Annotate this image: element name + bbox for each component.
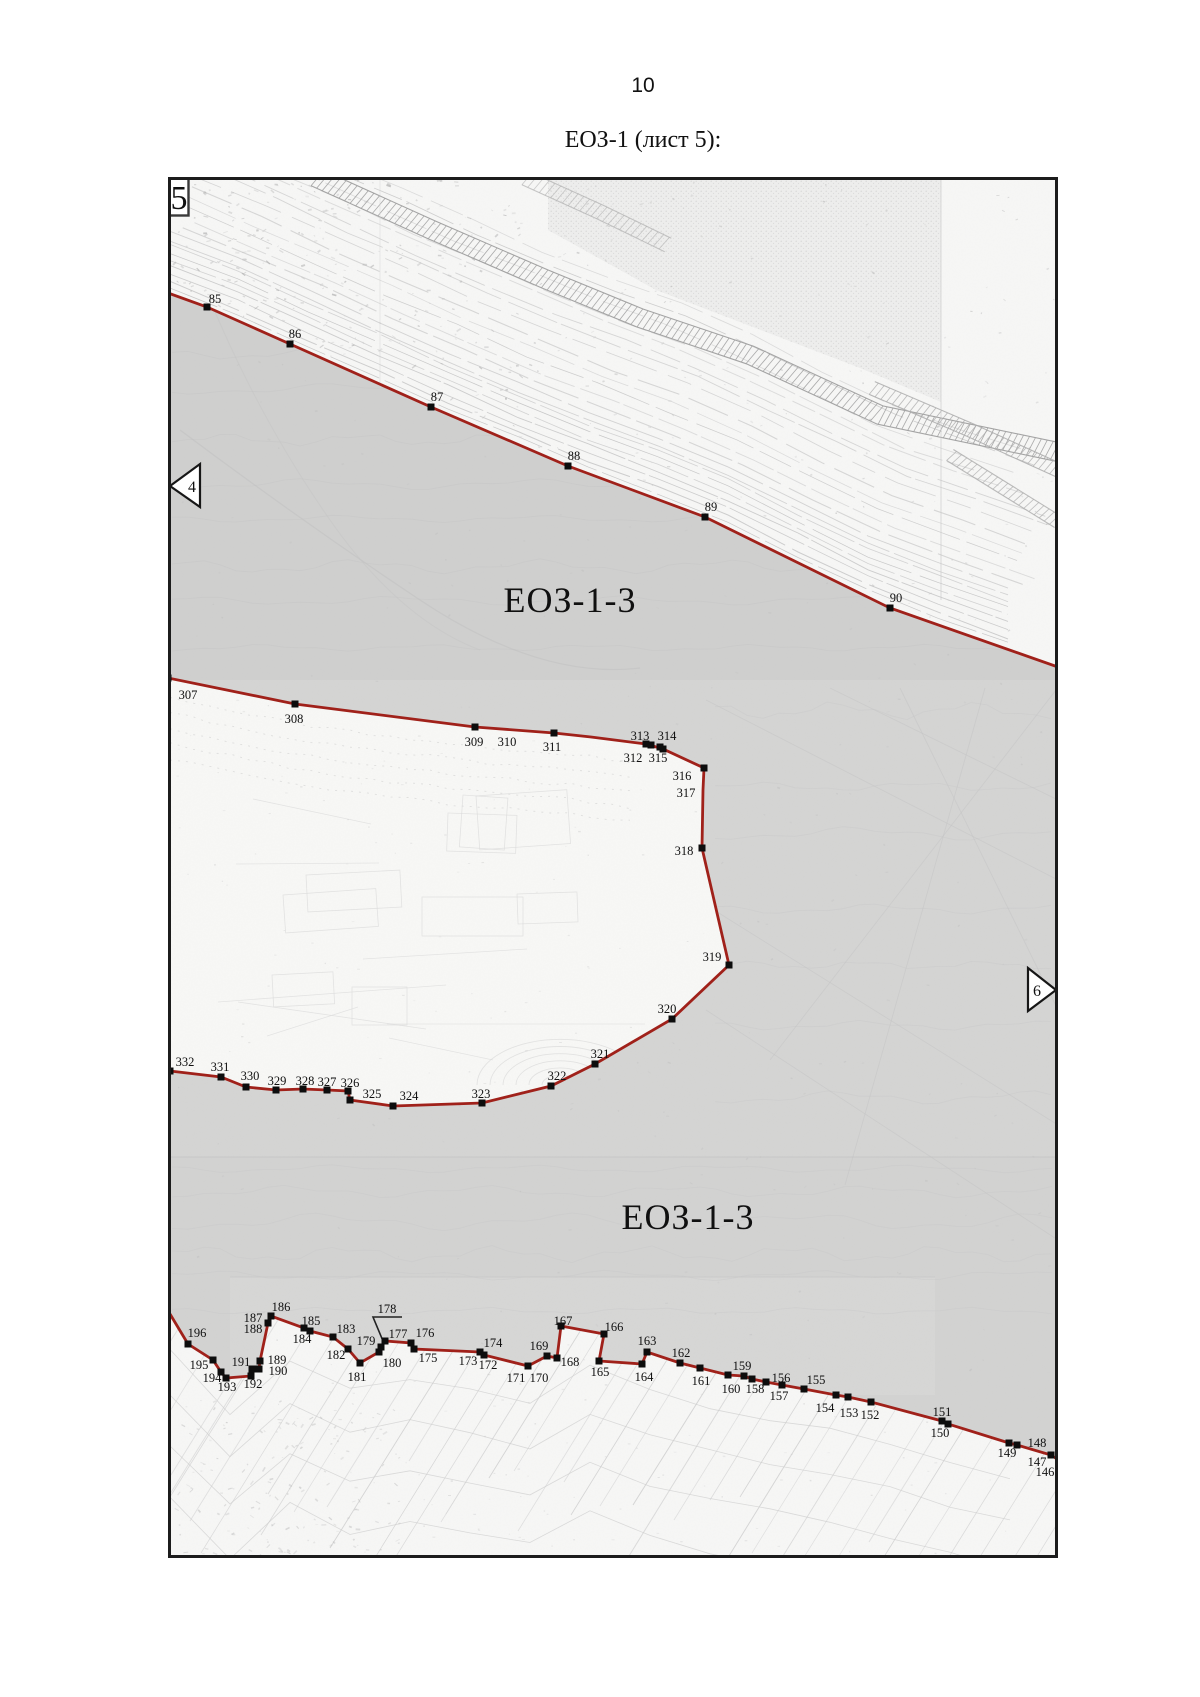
svg-text:181: 181 xyxy=(348,1370,367,1384)
svg-text:161: 161 xyxy=(692,1374,711,1388)
svg-text:159: 159 xyxy=(733,1359,752,1373)
svg-text:324: 324 xyxy=(400,1089,420,1103)
svg-text:311: 311 xyxy=(543,740,561,754)
svg-text:313: 313 xyxy=(631,729,650,743)
svg-text:177: 177 xyxy=(389,1327,408,1341)
svg-text:328: 328 xyxy=(296,1074,315,1088)
svg-text:322: 322 xyxy=(548,1069,567,1083)
svg-text:184: 184 xyxy=(293,1332,313,1346)
svg-text:90: 90 xyxy=(890,591,903,605)
svg-text:151: 151 xyxy=(933,1405,952,1419)
svg-text:312: 312 xyxy=(624,751,643,765)
svg-text:167: 167 xyxy=(554,1314,573,1328)
svg-text:309: 309 xyxy=(465,735,484,749)
svg-text:148: 148 xyxy=(1028,1436,1047,1450)
svg-text:183: 183 xyxy=(337,1322,356,1336)
svg-text:325: 325 xyxy=(363,1087,382,1101)
svg-text:89: 89 xyxy=(705,500,718,514)
svg-text:88: 88 xyxy=(568,449,581,463)
svg-text:182: 182 xyxy=(327,1348,346,1362)
svg-text:87: 87 xyxy=(431,390,444,404)
svg-text:160: 160 xyxy=(722,1382,741,1396)
svg-text:154: 154 xyxy=(816,1401,836,1415)
svg-text:332: 332 xyxy=(176,1055,195,1069)
svg-text:6: 6 xyxy=(1033,983,1041,1000)
svg-text:152: 152 xyxy=(861,1408,880,1422)
svg-text:156: 156 xyxy=(772,1371,791,1385)
svg-text:85: 85 xyxy=(209,292,222,306)
svg-text:191: 191 xyxy=(232,1355,251,1369)
svg-text:326: 326 xyxy=(341,1076,360,1090)
svg-text:329: 329 xyxy=(268,1074,287,1088)
svg-text:180: 180 xyxy=(383,1356,402,1370)
svg-text:323: 323 xyxy=(472,1087,491,1101)
svg-text:174: 174 xyxy=(484,1336,504,1350)
svg-text:170: 170 xyxy=(530,1371,549,1385)
svg-text:319: 319 xyxy=(703,950,722,964)
svg-text:153: 153 xyxy=(840,1406,859,1420)
svg-text:187: 187 xyxy=(244,1311,263,1325)
svg-text:192: 192 xyxy=(244,1377,263,1391)
svg-text:ЕОЗ-1-3: ЕОЗ-1-3 xyxy=(622,1197,755,1237)
svg-text:186: 186 xyxy=(272,1300,291,1314)
svg-text:173: 173 xyxy=(459,1354,478,1368)
svg-text:318: 318 xyxy=(675,844,694,858)
svg-text:158: 158 xyxy=(746,1382,765,1396)
svg-text:166: 166 xyxy=(605,1320,624,1334)
svg-text:149: 149 xyxy=(998,1446,1017,1460)
svg-text:310: 310 xyxy=(498,735,517,749)
svg-text:165: 165 xyxy=(591,1365,610,1379)
svg-text:164: 164 xyxy=(635,1370,655,1384)
svg-text:ЕОЗ-1-3: ЕОЗ-1-3 xyxy=(504,580,637,620)
svg-text:163: 163 xyxy=(638,1334,657,1348)
svg-text:175: 175 xyxy=(419,1351,438,1365)
svg-text:157: 157 xyxy=(770,1389,789,1403)
svg-text:189: 189 xyxy=(268,1353,287,1367)
svg-text:321: 321 xyxy=(591,1047,610,1061)
svg-text:196: 196 xyxy=(188,1326,207,1340)
svg-text:155: 155 xyxy=(807,1373,826,1387)
svg-text:327: 327 xyxy=(318,1075,337,1089)
svg-text:315: 315 xyxy=(649,751,668,765)
svg-text:307: 307 xyxy=(179,688,198,702)
svg-text:4: 4 xyxy=(188,479,196,496)
svg-text:169: 169 xyxy=(530,1339,549,1353)
svg-text:178: 178 xyxy=(378,1302,397,1316)
svg-text:314: 314 xyxy=(658,729,678,743)
svg-text:150: 150 xyxy=(931,1426,950,1440)
svg-text:320: 320 xyxy=(658,1002,677,1016)
svg-text:171: 171 xyxy=(507,1371,526,1385)
svg-text:176: 176 xyxy=(416,1326,435,1340)
svg-text:168: 168 xyxy=(561,1355,580,1369)
svg-text:193: 193 xyxy=(218,1380,237,1394)
svg-text:185: 185 xyxy=(302,1314,321,1328)
svg-text:172: 172 xyxy=(479,1358,498,1372)
svg-text:179: 179 xyxy=(357,1334,376,1348)
svg-text:86: 86 xyxy=(289,327,302,341)
svg-text:317: 317 xyxy=(677,786,696,800)
svg-text:146: 146 xyxy=(1036,1465,1055,1479)
svg-text:316: 316 xyxy=(673,769,692,783)
svg-text:330: 330 xyxy=(241,1069,260,1083)
svg-text:5: 5 xyxy=(171,180,188,217)
svg-text:195: 195 xyxy=(190,1358,209,1372)
svg-text:162: 162 xyxy=(672,1346,691,1360)
svg-text:308: 308 xyxy=(285,712,304,726)
svg-text:331: 331 xyxy=(211,1060,230,1074)
